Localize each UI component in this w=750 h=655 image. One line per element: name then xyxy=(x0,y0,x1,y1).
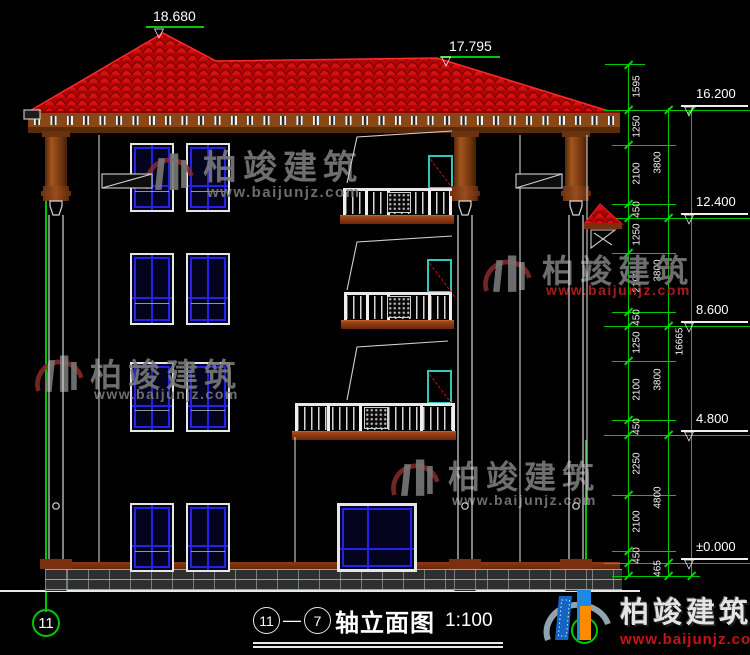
footer-brand: 柏竣建筑 xyxy=(620,589,750,631)
title-underline-2 xyxy=(253,646,503,648)
side-canopy xyxy=(584,204,622,248)
title-axis-left: 11 xyxy=(259,613,274,629)
elevation-drawing-canvas: 18.680 ▽ 17.795 ▽ 11 7 11 — 7 轴立面图 1:100 xyxy=(0,0,750,655)
footer-logo-icon xyxy=(534,584,616,652)
title-underline-1 xyxy=(253,642,503,644)
footer-logo: 柏竣建筑 www.baijunjz.com xyxy=(534,584,750,652)
stair-outline-2f xyxy=(347,236,452,290)
drawing-lines xyxy=(0,0,750,655)
gutter-end-cap xyxy=(24,110,40,119)
title-axis-right: 7 xyxy=(314,613,322,629)
title-axis-left-bubble: 11 xyxy=(253,607,280,634)
title-block: 11 — 7 轴立面图 1:100 xyxy=(253,603,503,648)
stair-outline-3f xyxy=(347,131,452,183)
downpipe-outlet xyxy=(53,503,59,509)
title-name: 轴立面图 xyxy=(335,603,435,638)
footer-url: www.baijunjz.com xyxy=(620,631,750,648)
downpipe-outlet xyxy=(573,503,579,509)
title-axis-right-bubble: 7 xyxy=(304,607,331,634)
title-separator: — xyxy=(283,610,301,631)
title-scale: 1:100 xyxy=(445,610,493,632)
downpipe-outlet xyxy=(462,503,468,509)
stair-outline-1f xyxy=(347,341,448,400)
